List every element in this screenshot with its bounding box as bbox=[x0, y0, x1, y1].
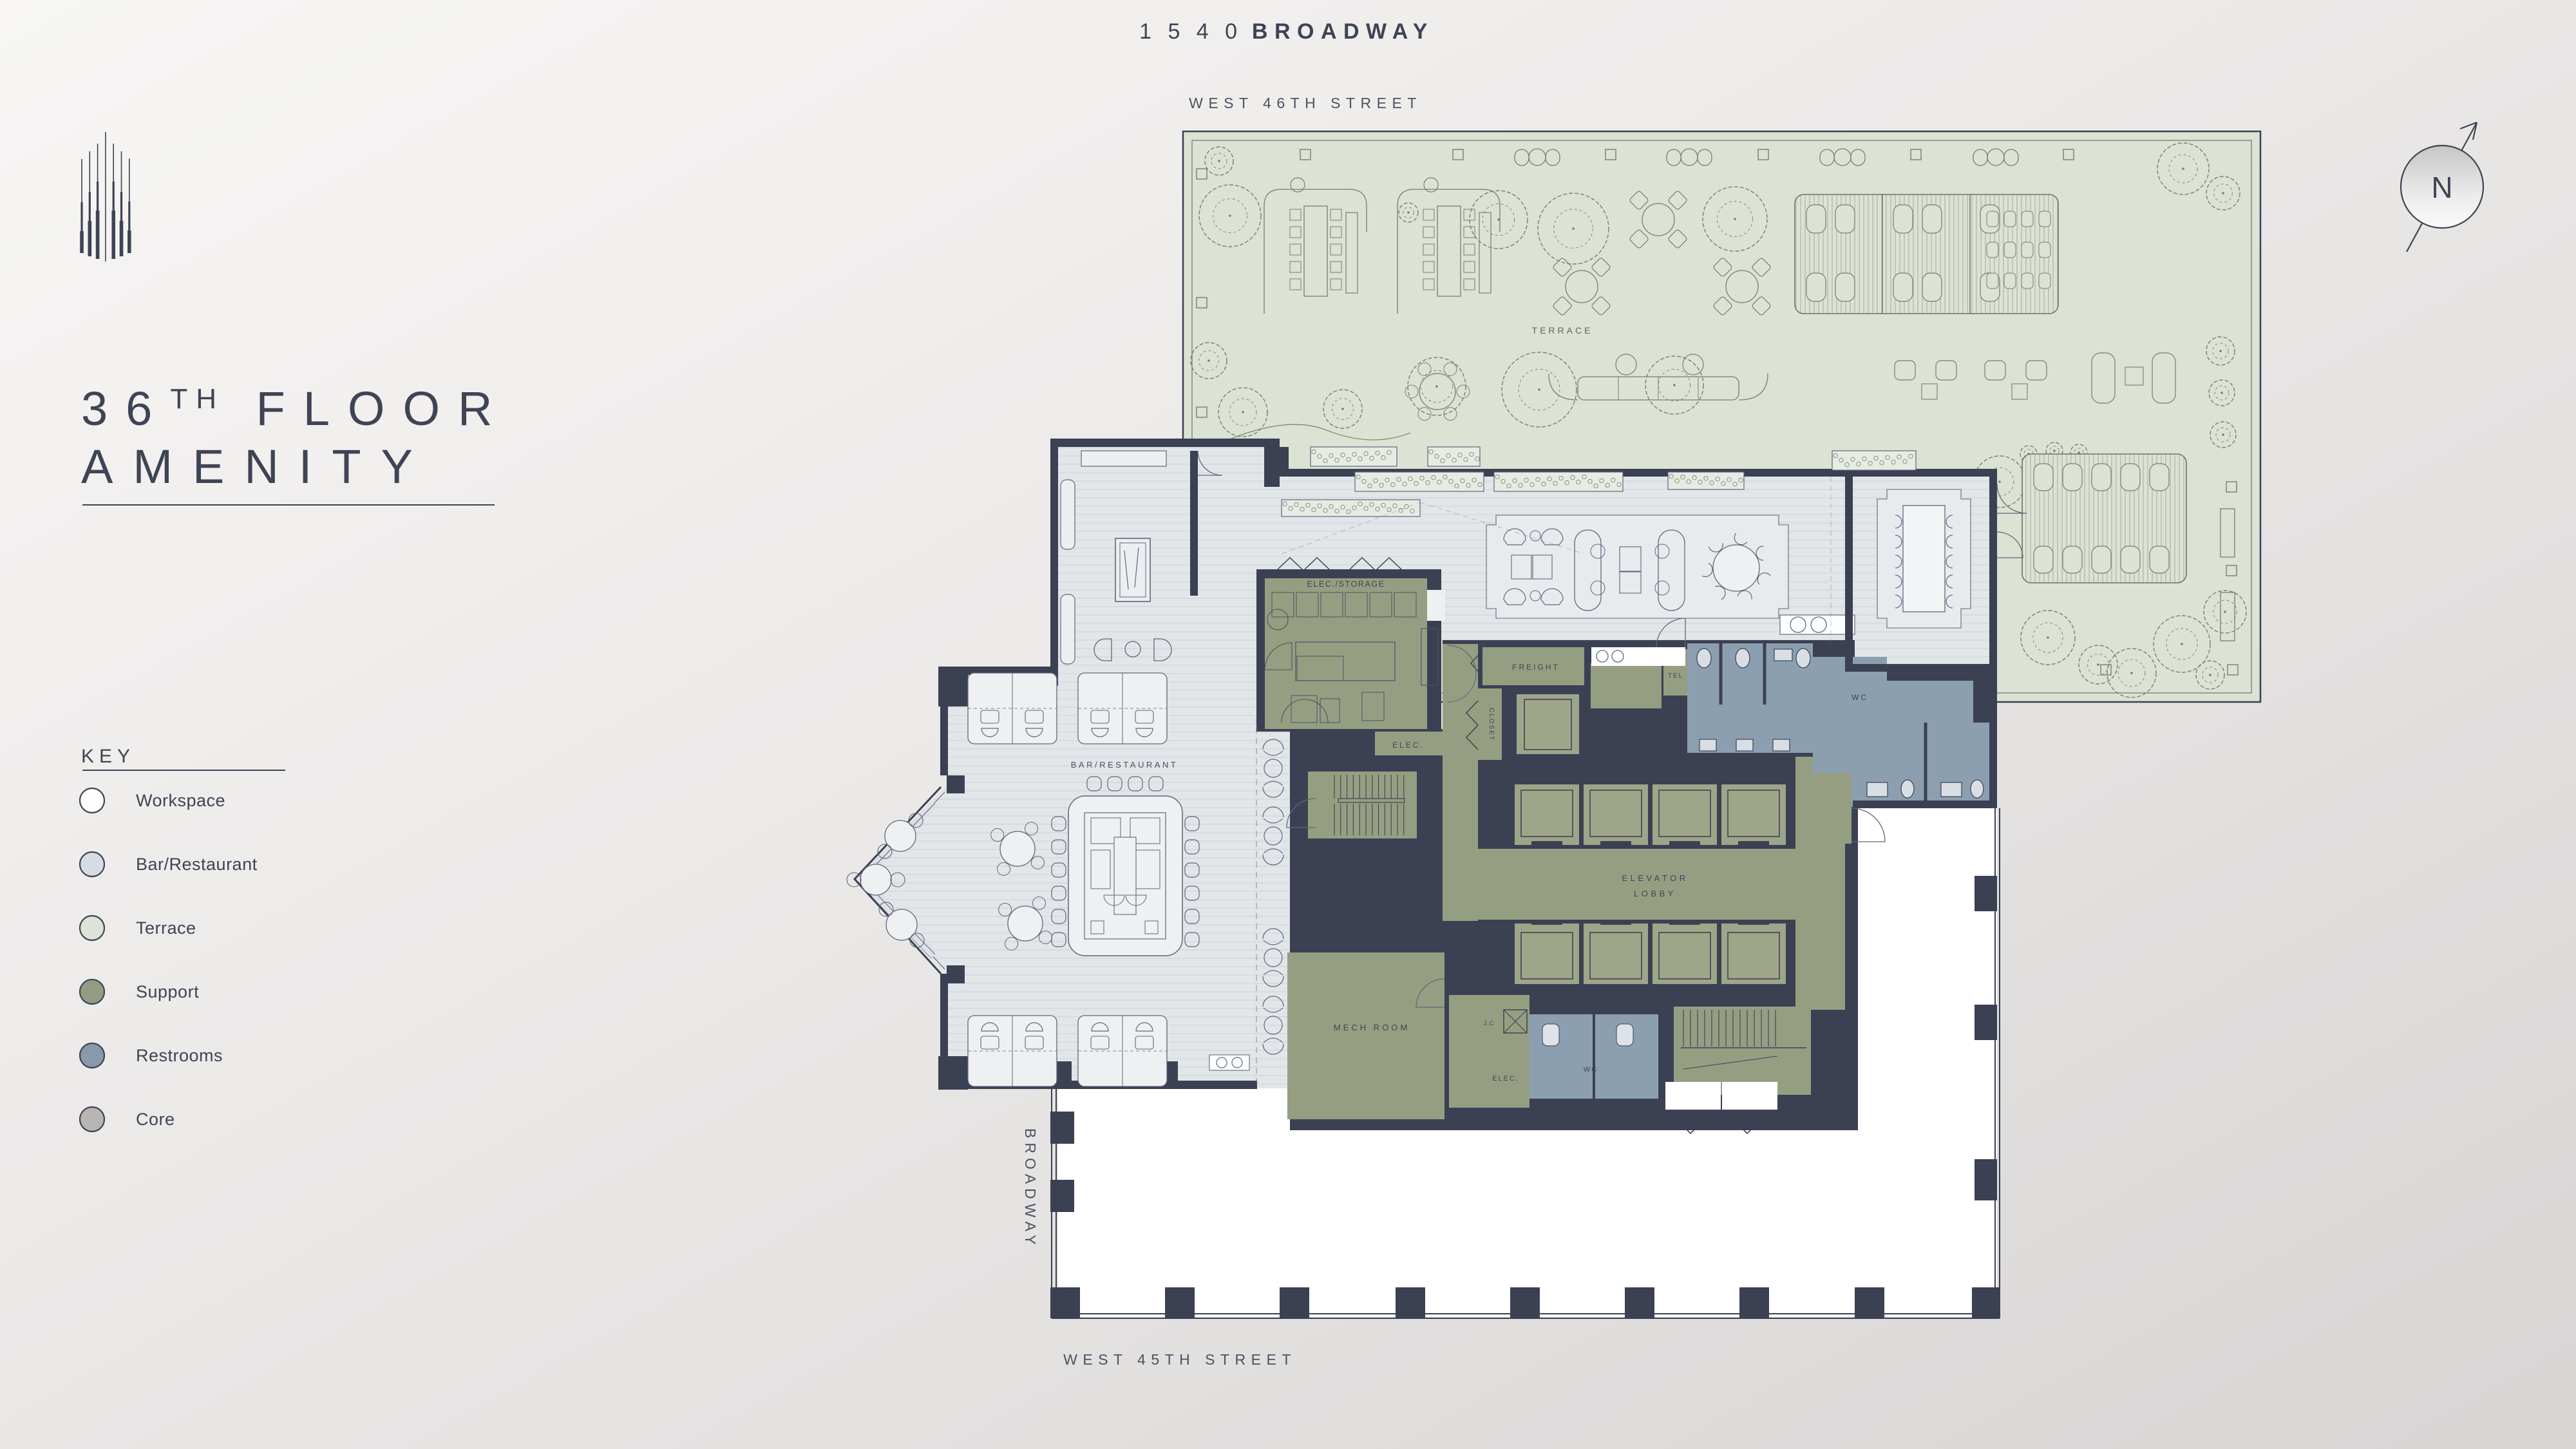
svg-text:TEL: TEL bbox=[1668, 672, 1683, 679]
svg-text:WEST 45TH STREET: WEST 45TH STREET bbox=[1063, 1351, 1296, 1368]
svg-text:WC: WC bbox=[1584, 1066, 1598, 1074]
svg-text:BAR/RESTAURANT: BAR/RESTAURANT bbox=[1071, 760, 1179, 770]
svg-text:ELEC.: ELEC. bbox=[1492, 1075, 1519, 1083]
svg-text:Restrooms: Restrooms bbox=[136, 1046, 223, 1065]
svg-text:ELEC.: ELEC. bbox=[1392, 741, 1425, 750]
svg-text:ELEVATOR: ELEVATOR bbox=[1622, 873, 1688, 883]
svg-text:AMENITY: AMENITY bbox=[81, 440, 433, 493]
svg-text:ELEC./STORAGE: ELEC./STORAGE bbox=[1307, 580, 1385, 589]
svg-text:Workspace: Workspace bbox=[136, 791, 225, 810]
svg-text:Bar/Restaurant: Bar/Restaurant bbox=[136, 855, 258, 874]
svg-text:Support: Support bbox=[136, 982, 199, 1001]
svg-text:J.C: J.C bbox=[1484, 1020, 1495, 1027]
svg-text:BROADWAY: BROADWAY bbox=[1022, 1128, 1039, 1249]
svg-text:FREIGHT: FREIGHT bbox=[1512, 663, 1560, 672]
svg-text:Core: Core bbox=[136, 1110, 175, 1129]
svg-text:36TH FLOOR: 36TH FLOOR bbox=[81, 382, 510, 435]
svg-text:1 5 4 0 BROADWAY: 1 5 4 0 BROADWAY bbox=[1139, 19, 1434, 44]
svg-text:WEST 46TH STREET: WEST 46TH STREET bbox=[1189, 95, 1422, 111]
svg-text:Terrace: Terrace bbox=[136, 918, 196, 938]
svg-text:WC: WC bbox=[1851, 693, 1868, 702]
svg-text:KEY: KEY bbox=[81, 746, 135, 767]
svg-text:MECH ROOM: MECH ROOM bbox=[1334, 1023, 1410, 1032]
svg-text:TERRACE: TERRACE bbox=[1532, 325, 1593, 336]
svg-text:CLOSET: CLOSET bbox=[1488, 708, 1495, 741]
svg-text:N: N bbox=[2431, 171, 2452, 204]
svg-text:LOBBY: LOBBY bbox=[1634, 889, 1676, 898]
